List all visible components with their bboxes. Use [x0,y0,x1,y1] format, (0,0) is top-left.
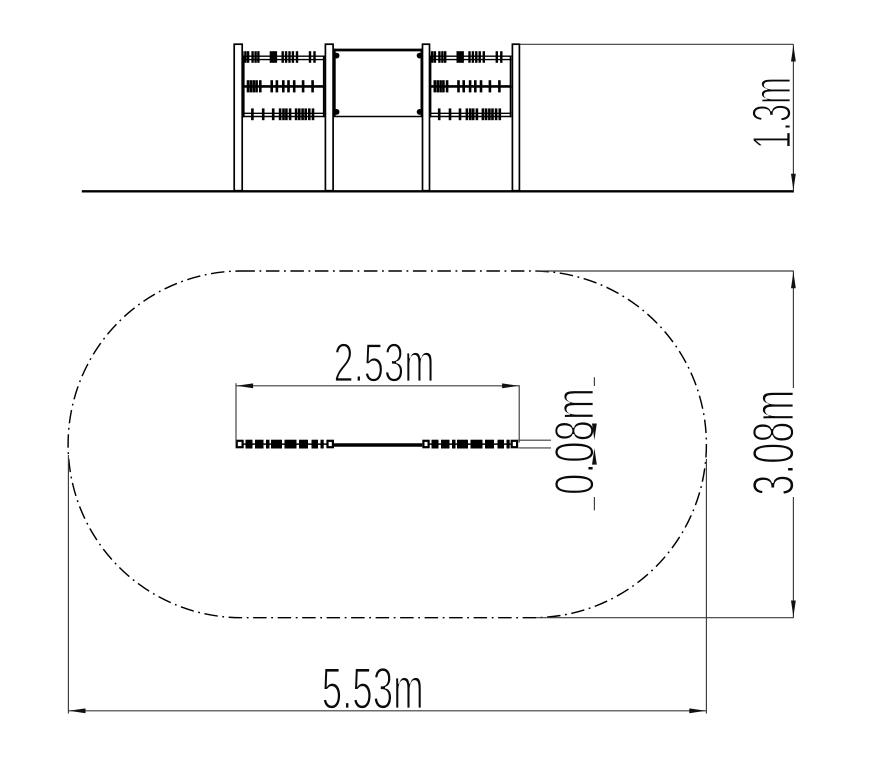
svg-text:1.3m: 1.3m [741,77,803,149]
svg-text:0.08m: 0.08m [543,388,606,495]
svg-text:5.53m: 5.53m [322,656,424,721]
svg-text:3.08m: 3.08m [741,390,806,496]
svg-text:2.53m: 2.53m [334,332,435,394]
